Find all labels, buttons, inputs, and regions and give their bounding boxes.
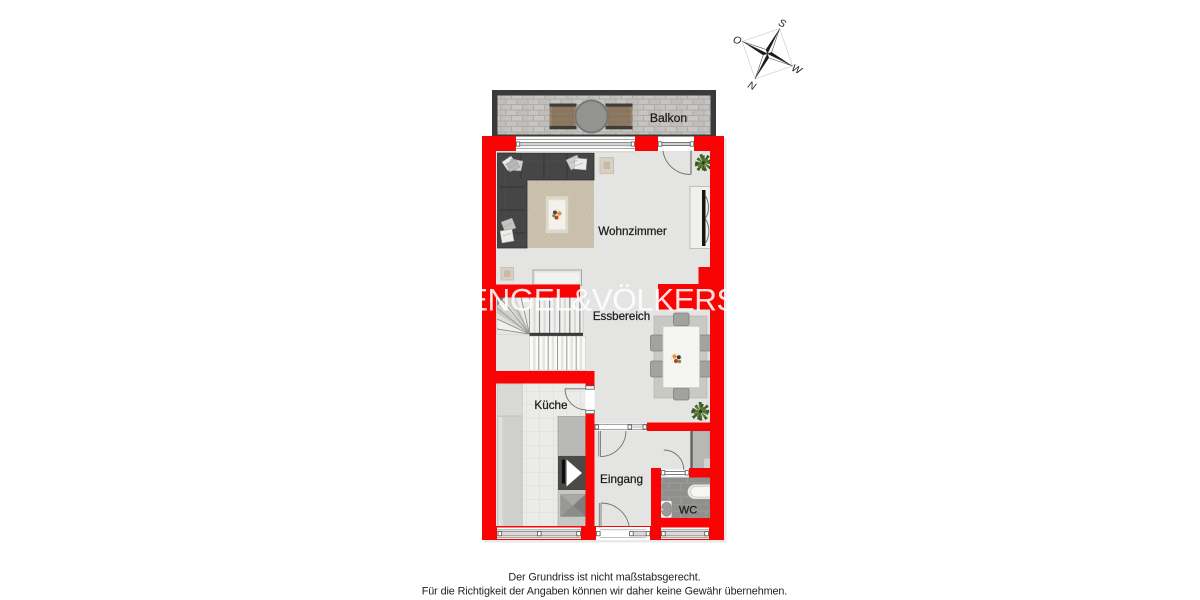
svg-text:Der Grundriss ist nicht maßsta: Der Grundriss ist nicht maßstabsgerecht. [508, 572, 700, 584]
svg-text:Für die Richtigkeit der Angabe: Für die Richtigkeit der Angaben können w… [422, 586, 788, 598]
svg-text:Balkon: Balkon [650, 111, 687, 125]
svg-text:WC: WC [679, 505, 697, 517]
svg-text:Wohnzimmer: Wohnzimmer [598, 225, 667, 238]
svg-text:Küche: Küche [534, 399, 567, 412]
svg-text:ENGEL&VÖLKERS: ENGEL&VÖLKERS [467, 282, 737, 318]
svg-text:Eingang: Eingang [600, 473, 643, 486]
